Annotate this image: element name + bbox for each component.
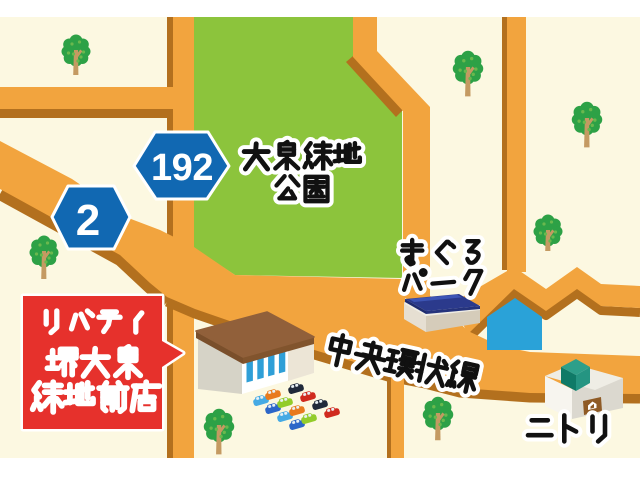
svg-text:192: 192 xyxy=(151,147,213,189)
svg-text:2: 2 xyxy=(76,196,100,245)
